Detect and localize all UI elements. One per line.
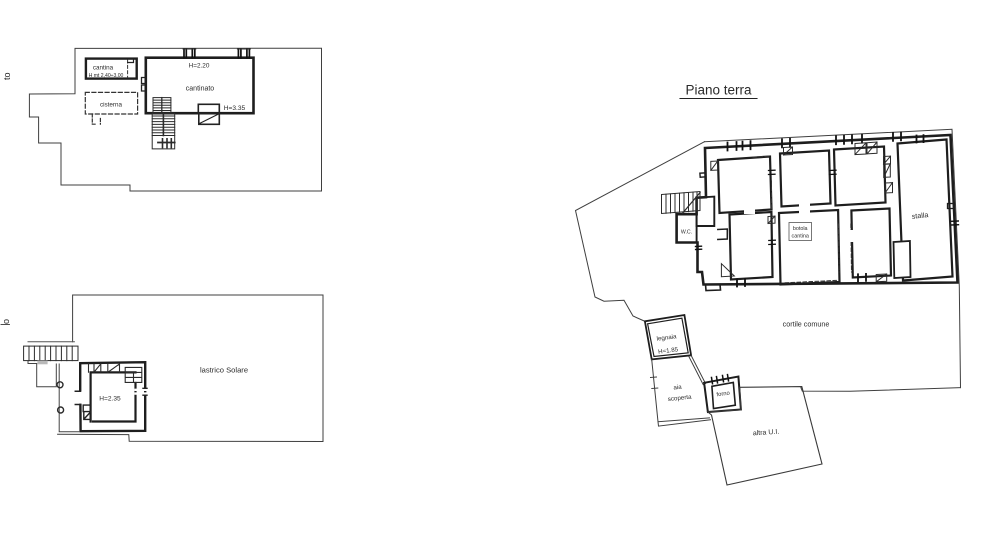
svg-text:cortile comune: cortile comune [783,320,830,329]
svg-text:lastrico Solare: lastrico Solare [200,365,248,374]
svg-text:aia: aia [673,384,682,392]
svg-text:H=2.35: H=2.35 [99,395,121,402]
svg-text:botola: botola [793,226,808,232]
svg-text:o: o [1,319,11,324]
svg-text:H=3.35: H=3.35 [224,105,246,112]
svg-text:to: to [2,72,12,80]
svg-text:cantina: cantina [792,234,809,240]
svg-text:W.C.: W.C. [681,230,692,236]
svg-text:stalla: stalla [911,210,929,221]
svg-text:Piano terra: Piano terra [685,83,752,98]
svg-text:cantinato: cantinato [186,85,215,92]
svg-text:cisterna: cisterna [100,101,123,108]
svg-text:H mt 2,40÷3,00: H mt 2,40÷3,00 [89,73,124,79]
svg-text:cantina: cantina [93,64,114,71]
svg-text:H=2.20: H=2.20 [189,63,210,70]
